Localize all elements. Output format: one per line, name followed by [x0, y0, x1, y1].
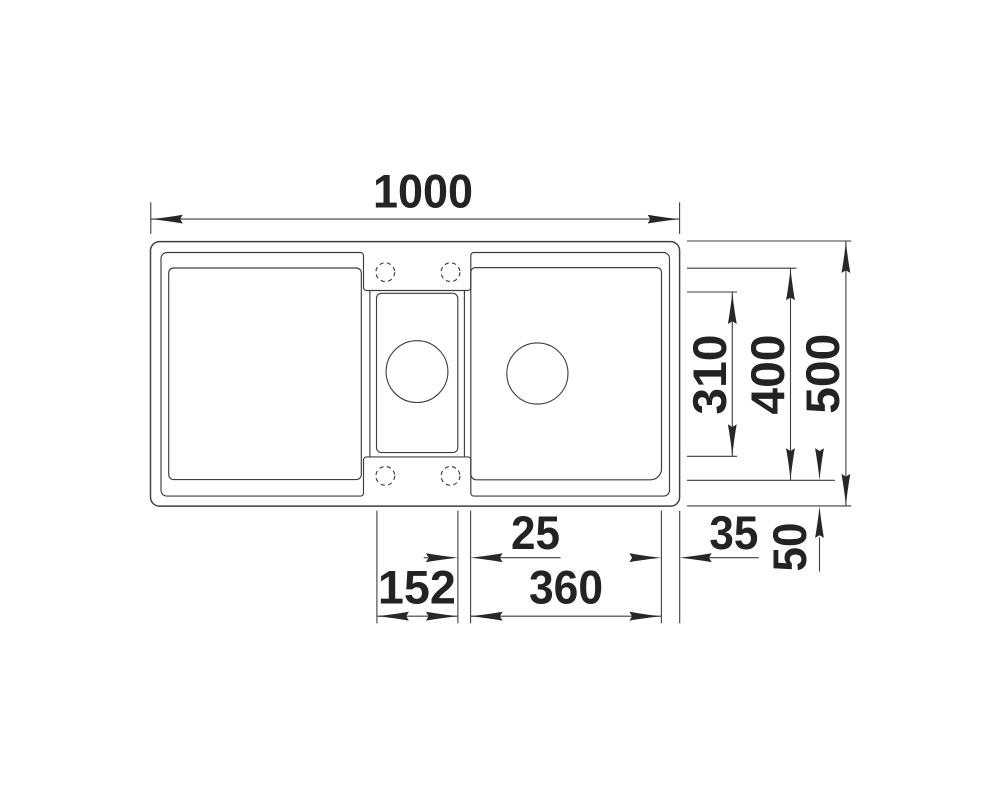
- svg-text:360: 360: [529, 561, 603, 614]
- svg-text:25: 25: [511, 506, 560, 559]
- svg-text:1000: 1000: [373, 165, 473, 218]
- svg-text:50: 50: [763, 523, 816, 572]
- svg-text:400: 400: [741, 335, 794, 415]
- svg-text:35: 35: [709, 506, 758, 559]
- svg-text:310: 310: [683, 335, 736, 415]
- svg-text:152: 152: [378, 561, 456, 614]
- svg-text:500: 500: [796, 334, 849, 414]
